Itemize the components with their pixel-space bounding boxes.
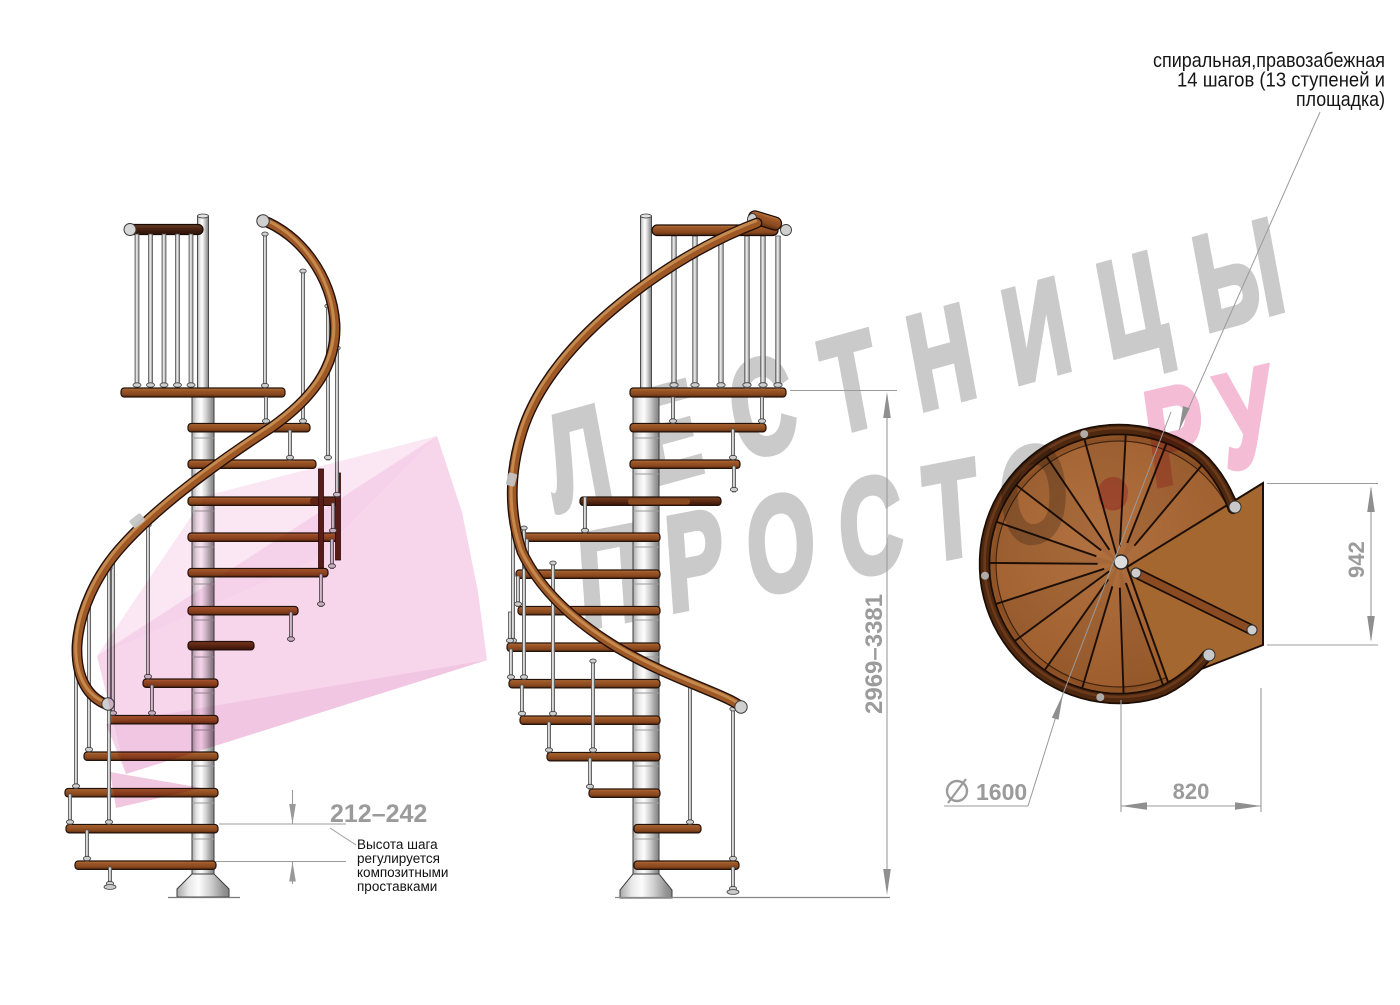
svg-text:1600: 1600: [976, 779, 1027, 805]
svg-text:Высота шагарегулируетсякомпози: Высота шагарегулируетсякомпозитнымипрост…: [357, 837, 448, 894]
svg-text:РУ: РУ: [1136, 335, 1300, 517]
svg-text:820: 820: [1173, 779, 1210, 804]
svg-text:2969–3381: 2969–3381: [861, 594, 888, 714]
svg-text:площадка): площадка): [1296, 89, 1385, 111]
svg-text:942: 942: [1344, 541, 1369, 578]
svg-text:212–242: 212–242: [330, 800, 427, 828]
